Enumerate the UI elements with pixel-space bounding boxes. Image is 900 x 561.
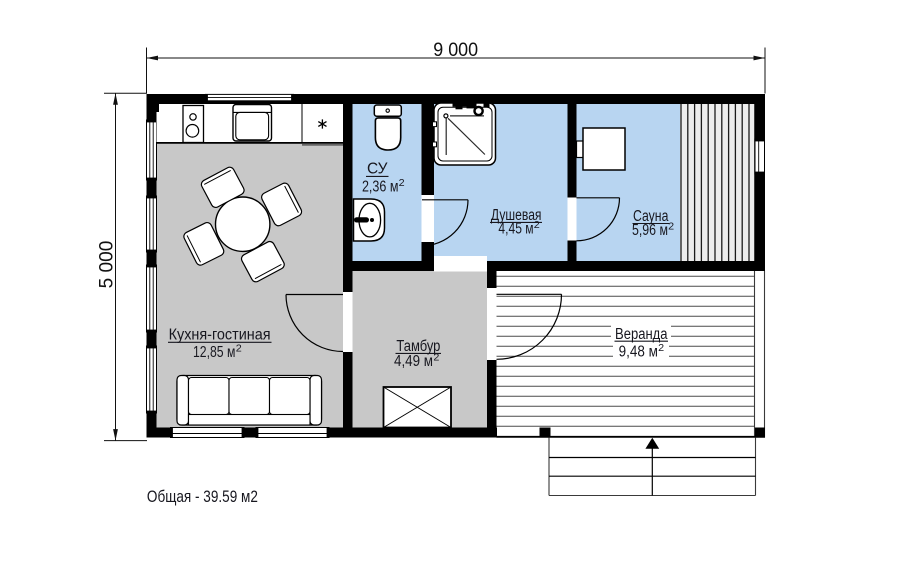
svg-text:9 000: 9 000	[433, 39, 478, 61]
svg-text:4,49 м: 4,49 м	[394, 353, 433, 370]
svg-text:2: 2	[658, 342, 664, 354]
svg-text:2: 2	[236, 343, 242, 355]
svg-text:4,45 м: 4,45 м	[498, 221, 533, 238]
svg-text:9,48 м: 9,48 м	[619, 344, 658, 361]
svg-text:Общая - 39.59 м2: Общая - 39.59 м2	[147, 487, 258, 506]
svg-text:Веранда: Веранда	[615, 326, 668, 343]
svg-text:2: 2	[668, 221, 674, 233]
svg-text:5 000: 5 000	[95, 241, 117, 289]
svg-text:5,96 м: 5,96 м	[632, 222, 668, 239]
svg-text:2: 2	[399, 177, 405, 189]
svg-text:2: 2	[433, 352, 439, 364]
svg-text:12,85 м: 12,85 м	[193, 344, 235, 361]
svg-text:Кухня-гостиная: Кухня-гостиная	[169, 327, 271, 344]
svg-text:СУ: СУ	[367, 161, 388, 178]
svg-text:2: 2	[534, 219, 540, 231]
svg-text:2,36 м: 2,36 м	[362, 179, 399, 196]
